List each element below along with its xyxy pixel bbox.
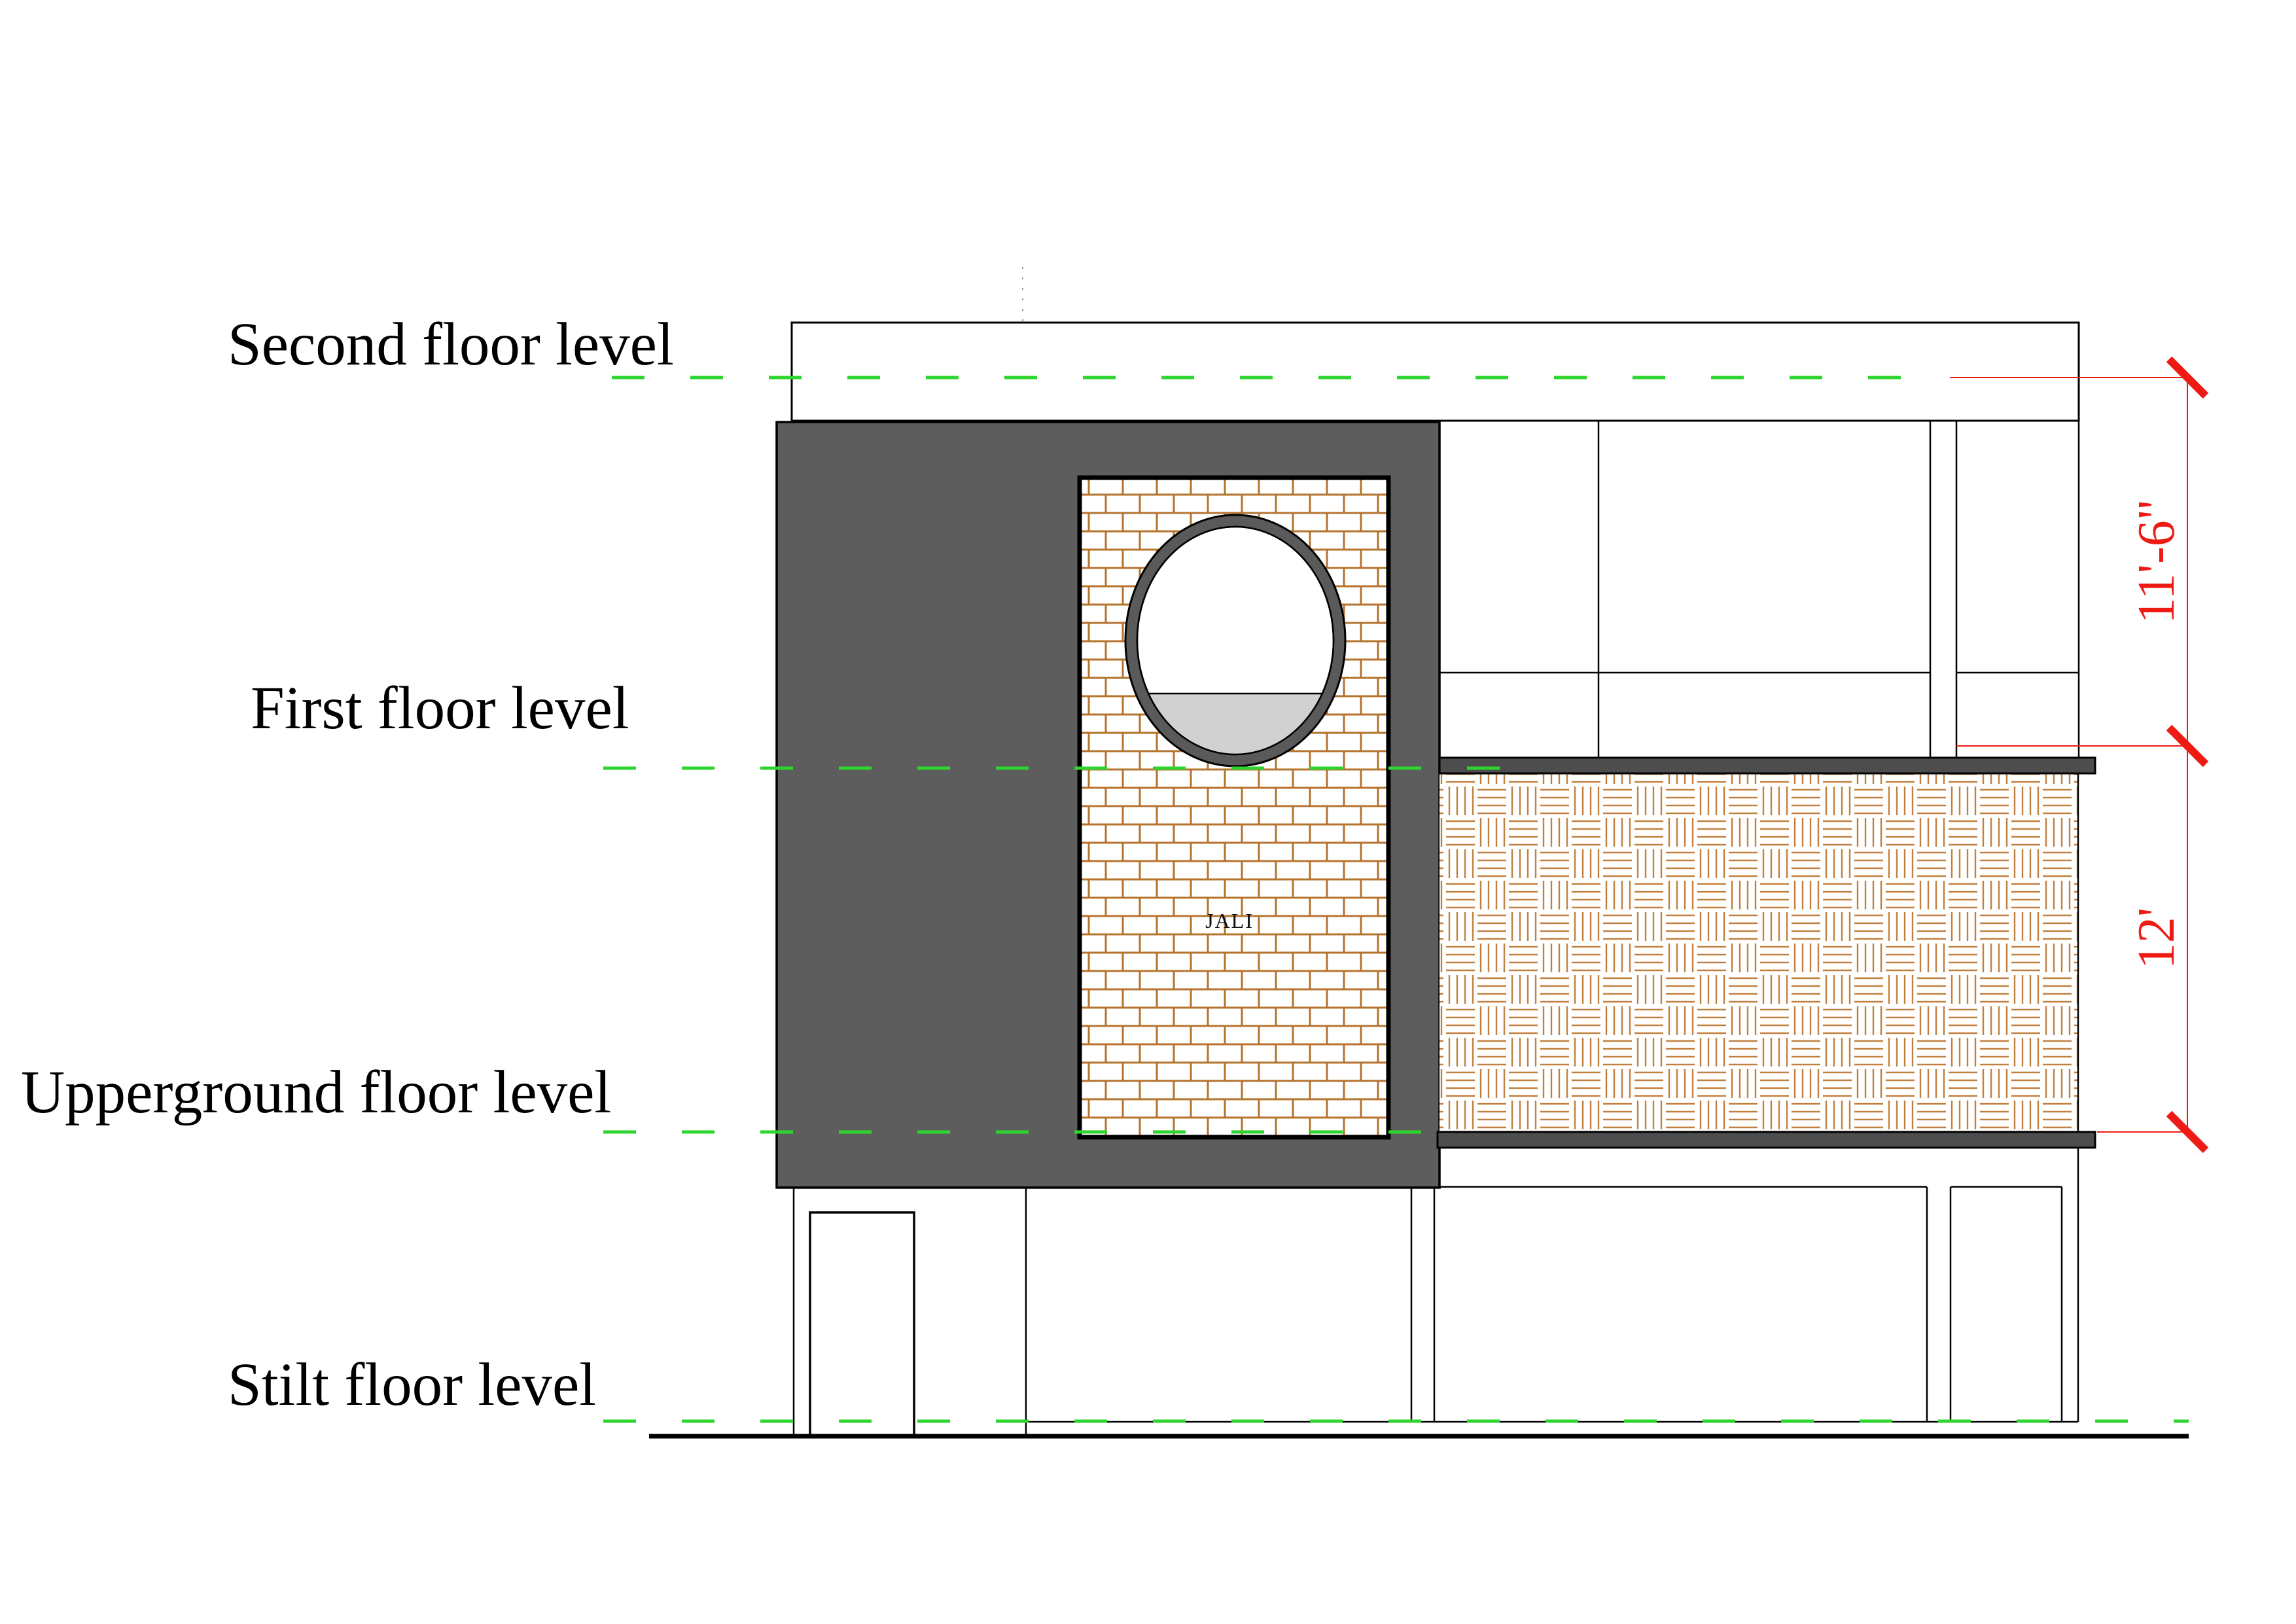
balcony-screen-weave-texture	[1439, 773, 2078, 1132]
balcony-slab-band-top	[1439, 758, 2095, 773]
second-floor-slab	[792, 323, 2079, 421]
stilt-door	[810, 1212, 914, 1436]
dim-text-11-6: 11'-6"	[2128, 499, 2185, 624]
dim-text-12: 12'	[2128, 908, 2185, 969]
balcony-slab-band-bottom	[1438, 1132, 2095, 1148]
upperground-floor-label: Upperground floor level	[21, 1059, 611, 1126]
jali-label: JALI	[1205, 909, 1254, 932]
stilt-floor-label: Stilt floor level	[228, 1351, 596, 1419]
second-floor-label: Second floor level	[228, 311, 674, 378]
porthole-window	[1124, 515, 1347, 766]
balcony	[1438, 758, 2095, 1148]
elevation-sheet: JALI	[0, 0, 2296, 1624]
elevation-drawing: JALI	[0, 0, 2296, 1624]
first-floor-label: First floor level	[251, 675, 629, 742]
